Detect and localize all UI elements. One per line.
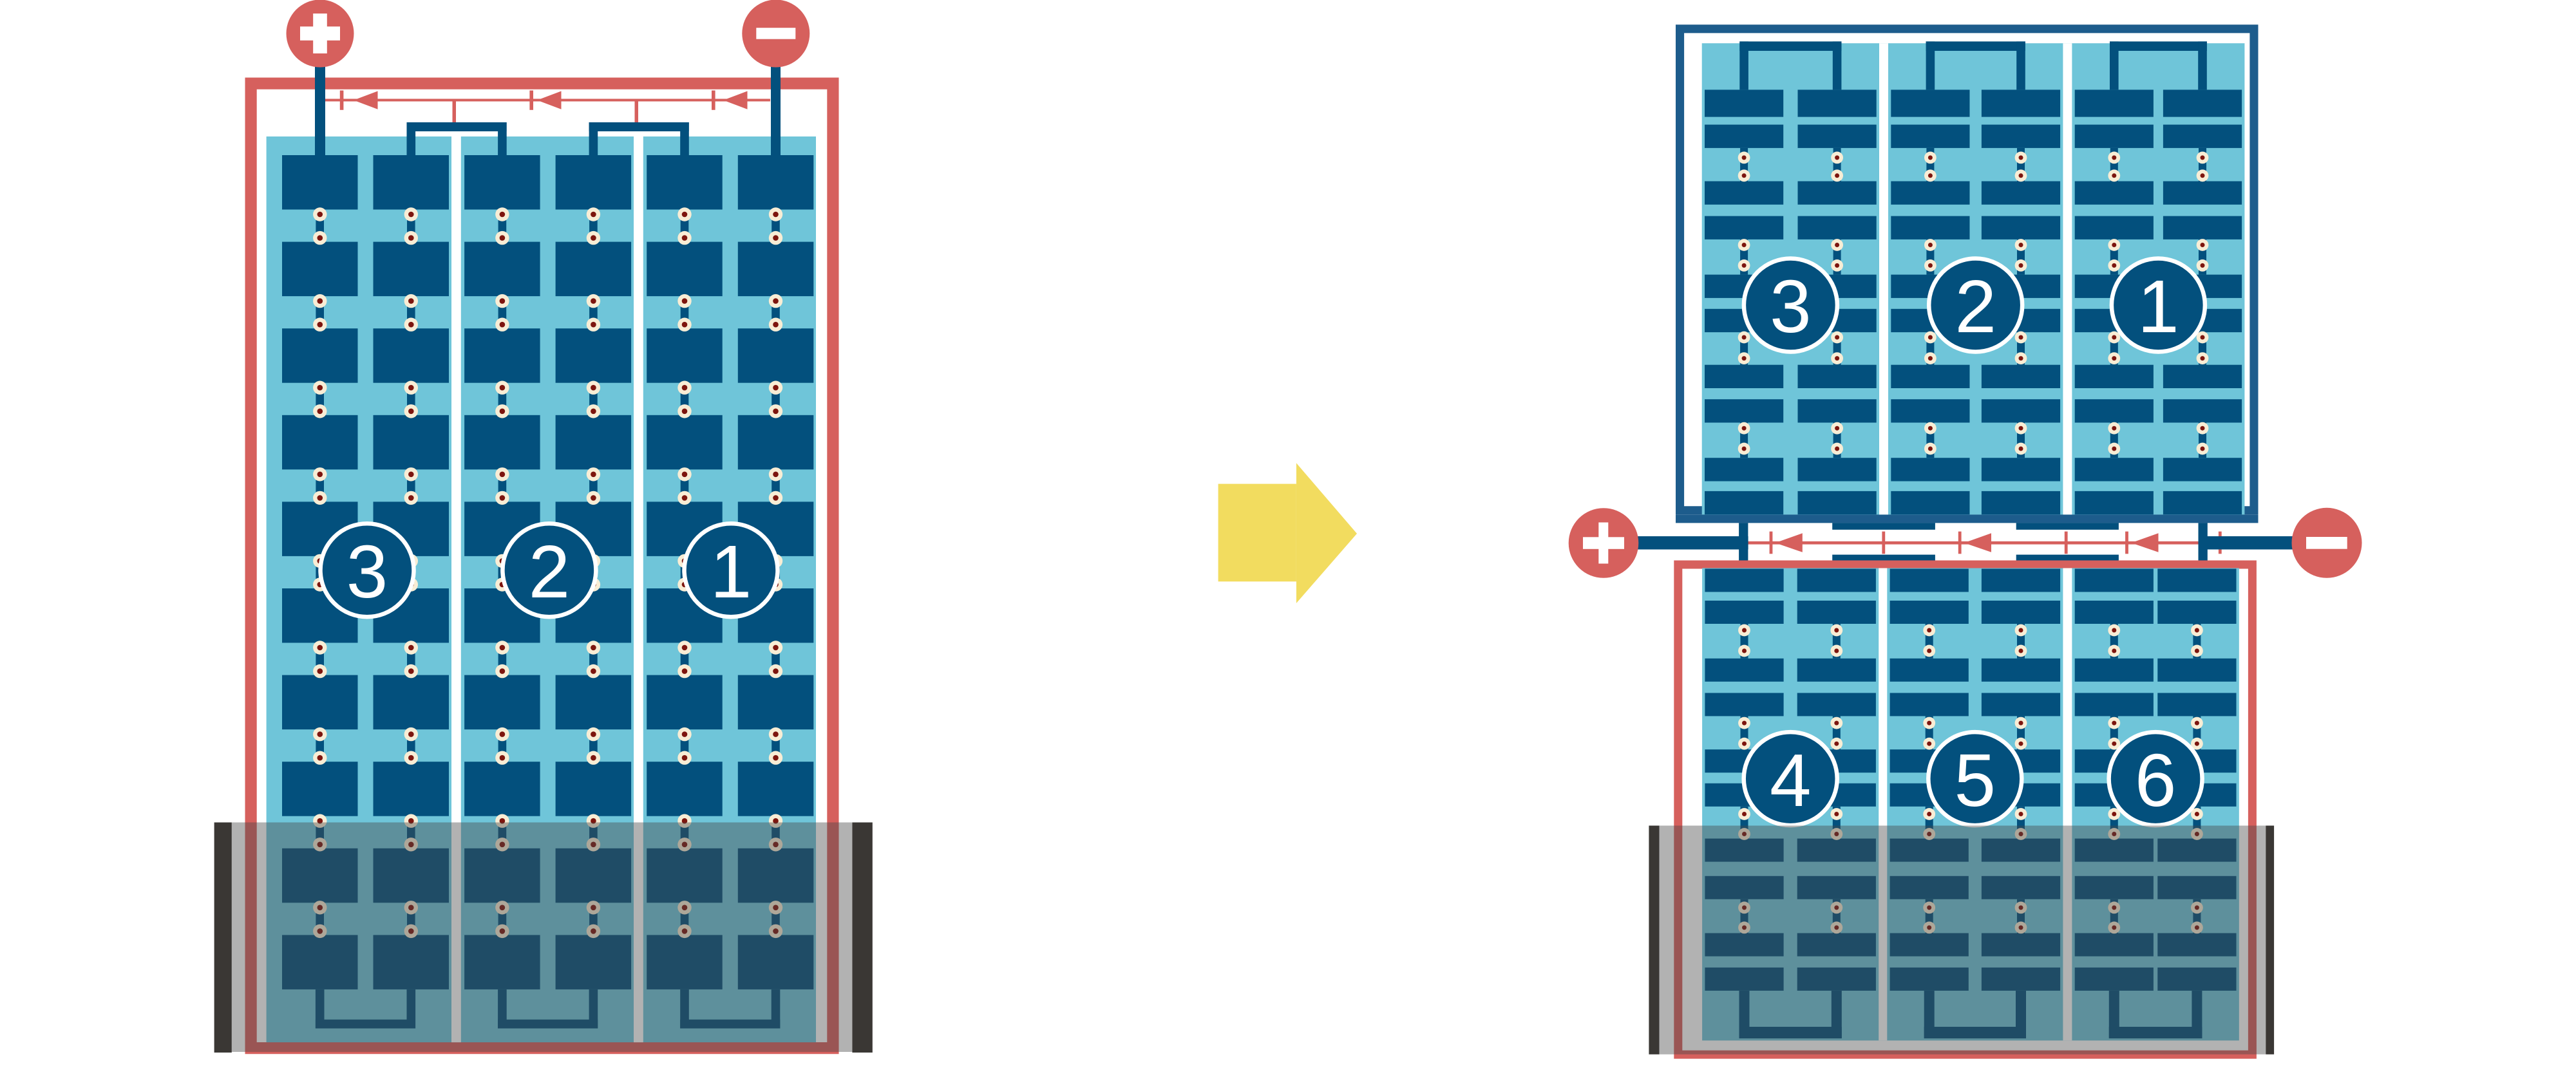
svg-text:3: 3: [346, 530, 388, 614]
svg-text:1: 1: [710, 530, 752, 614]
svg-text:6: 6: [2135, 738, 2177, 822]
svg-text:1: 1: [2137, 265, 2179, 348]
svg-text:5: 5: [1955, 738, 1996, 822]
svg-text:2: 2: [1955, 265, 1996, 348]
svg-text:3: 3: [1770, 265, 1812, 348]
svg-text:4: 4: [1770, 738, 1812, 822]
svg-text:2: 2: [529, 530, 571, 614]
